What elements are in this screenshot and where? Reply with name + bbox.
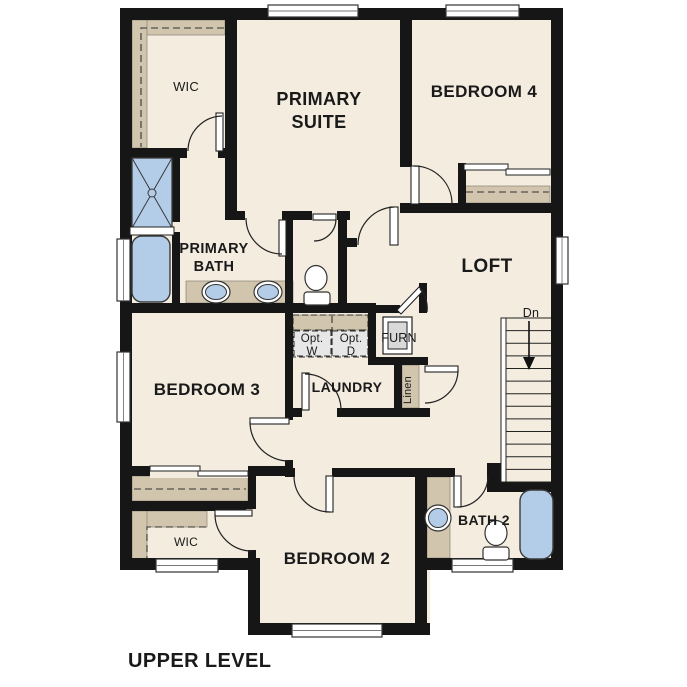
door-leaf — [216, 113, 223, 151]
wall — [400, 203, 563, 213]
toilet-tank — [483, 547, 509, 560]
shower-shelf — [130, 227, 174, 235]
shower-drain — [148, 189, 156, 197]
door-leaf — [411, 166, 419, 204]
room-label-bedroom-2: BEDROOM 2 — [284, 549, 391, 568]
wall — [487, 463, 501, 492]
door-opening — [283, 420, 295, 460]
room-label-primary-suite-line2: SUITE — [291, 112, 346, 132]
door-opening — [187, 146, 218, 160]
floor-plan-page: WICPRIMARYSUITEBEDROOM 4PRIMARYBATHLOFTD… — [0, 0, 687, 687]
room-label-laundry: LAUNDRY — [312, 379, 383, 395]
room-label-wic-primary: WIC — [173, 79, 199, 94]
room-label-primary-suite-line1: PRIMARY — [276, 89, 361, 109]
wall — [368, 357, 428, 365]
door-leaf — [279, 220, 286, 256]
shelf-counter-area — [132, 20, 147, 148]
wall — [172, 155, 180, 222]
closet-bypass-door — [150, 466, 200, 471]
label-opt-dryer-line1: Opt. — [340, 333, 363, 345]
wall — [368, 308, 376, 365]
door-leaf — [390, 207, 398, 245]
door-leaf — [250, 418, 289, 424]
door-leaf — [425, 366, 458, 372]
wall — [394, 365, 402, 408]
wall — [225, 16, 237, 220]
sink-basin — [258, 285, 279, 300]
closet-bypass-door — [506, 169, 550, 175]
room-label-bedroom-3: BEDROOM 3 — [154, 380, 261, 399]
room-label-primary-bath-line2: BATH — [194, 259, 235, 275]
wall — [415, 468, 427, 635]
sink-basin — [206, 285, 227, 300]
door-leaf — [302, 373, 309, 410]
toilet-tank — [304, 292, 330, 305]
label-opt-dryer-line2: D — [347, 346, 356, 358]
room-label-primary-bath-line1: PRIMARY — [179, 241, 248, 257]
toilet-bowl — [305, 266, 327, 291]
room-label-linen: Linen — [402, 376, 414, 404]
wall — [338, 220, 347, 308]
door-leaf — [313, 214, 336, 220]
room-label-bedroom-4: BEDROOM 4 — [431, 82, 538, 101]
door-leaf — [215, 510, 252, 516]
floor-plan-svg: WICPRIMARYSUITEBEDROOM 4PRIMARYBATHLOFTD… — [0, 0, 687, 687]
label-opt-washer-line1: Opt. — [301, 333, 324, 345]
plan-title: UPPER LEVEL — [128, 650, 271, 672]
shelf-counter-area — [464, 186, 550, 203]
label-opt-washer-line2: W — [306, 346, 317, 358]
shelf-counter-area — [293, 315, 368, 330]
sink-basin — [429, 509, 448, 528]
closet-bypass-door — [464, 164, 508, 170]
door-opening — [245, 209, 282, 222]
door-leaf — [454, 476, 461, 507]
bathtub — [132, 236, 170, 302]
bathtub — [520, 490, 553, 559]
shelf-counter-area — [132, 511, 147, 563]
room-label-wic-bedroom2: WIC — [174, 535, 198, 549]
stairs-direction-label: Dn — [523, 306, 539, 320]
closet-bypass-door — [198, 471, 248, 476]
door-leaf — [326, 476, 333, 512]
wall — [347, 238, 357, 247]
room-label-furnace: FURN — [381, 331, 417, 345]
room-label-bath-2: BATH 2 — [458, 512, 510, 528]
wall — [400, 8, 412, 167]
stairs-stringer — [501, 318, 506, 482]
wall — [376, 305, 400, 313]
room-label-loft: LOFT — [461, 256, 512, 277]
